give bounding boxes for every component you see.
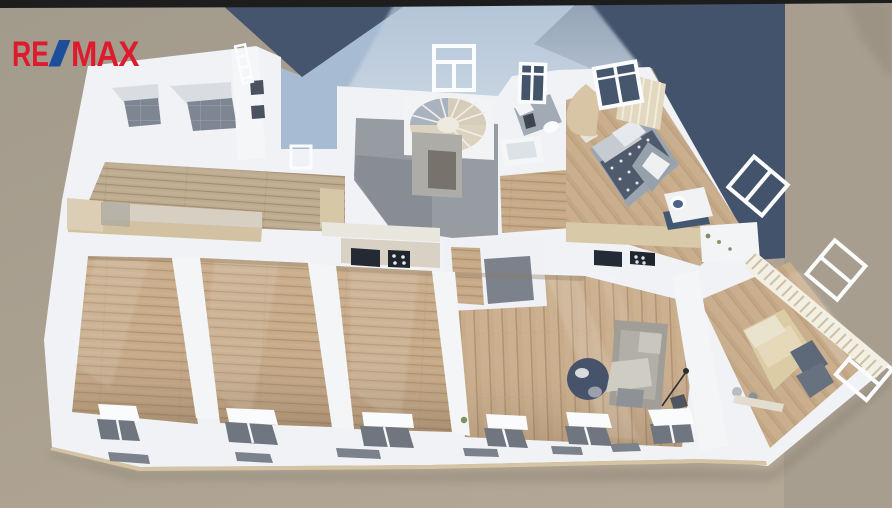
- svg-text:MAX: MAX: [71, 35, 140, 74]
- svg-text:RE: RE: [12, 34, 49, 74]
